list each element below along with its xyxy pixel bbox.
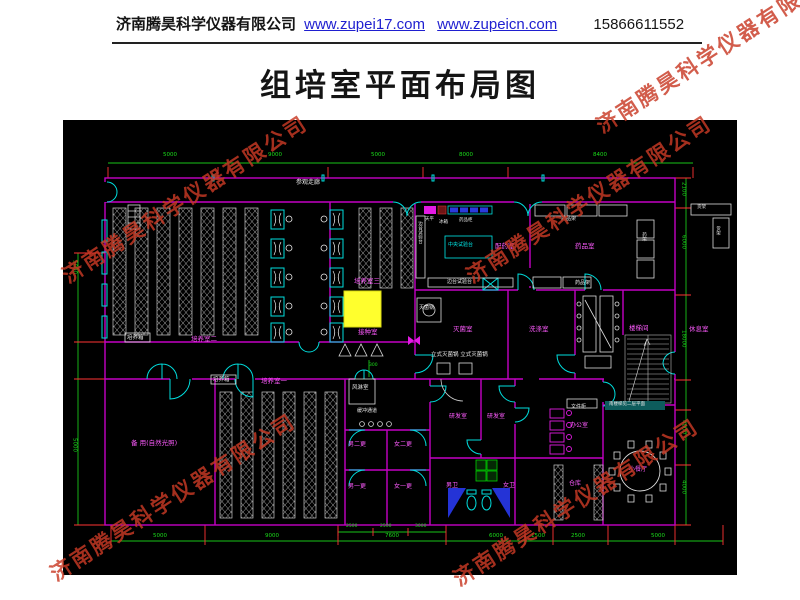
link-zupeicn[interactable]: www.zupeicn.com — [437, 16, 557, 33]
label-change-room: 男二更 — [348, 442, 366, 448]
label-culture-room-2: 培养室二 — [191, 336, 217, 343]
dim-bottom: 2500 — [571, 534, 585, 540]
dim-sub: 2500 — [346, 525, 357, 530]
label-change-room: 男一更 — [348, 484, 366, 490]
page-title: 组培室平面布局图 — [260, 60, 540, 105]
dim-left: 5000 — [71, 438, 77, 452]
dim-top: 8400 — [593, 153, 607, 159]
label-central-bench: 中央试验台 — [448, 243, 473, 248]
dim-right: 2100 — [680, 182, 686, 196]
label-file-cabinet: 文件柜 — [571, 405, 586, 410]
label-mens-toilet: 男卫 — [446, 483, 458, 489]
header-divider — [112, 42, 702, 44]
label-culture-room-1: 培养室一 — [261, 378, 287, 385]
label-medicine-cabinet: 药品柜 — [459, 219, 473, 224]
dim-top: 5000 — [371, 153, 385, 159]
label-fridge: 冰箱 — [439, 221, 448, 226]
label-buffer-corridor: 缓冲通道 — [357, 409, 377, 414]
floor-plan-canvas: 参观走廊培养箱培养室二培养室三接种室培养箱培养室一备 用(自然光照)风淋室缓冲通… — [63, 120, 737, 575]
dim-right: 6000 — [680, 235, 686, 249]
label-inoculation-room: 接种室 — [358, 329, 378, 336]
dim-bottom: 5000 — [651, 534, 665, 540]
label-sterilizer: 灭菌锅 — [419, 306, 434, 311]
label-office: 办公室 — [570, 423, 588, 429]
label-rd-room: 研发室 — [487, 414, 505, 420]
label-air-shower: 风淋室 — [352, 386, 369, 392]
label-vertical-sterilizers: 立式灭菌锅 立式灭菌锅 — [431, 353, 488, 359]
label-sterilization-room: 灭菌室 — [453, 326, 473, 333]
dim-right: 4000 — [680, 480, 686, 494]
label-shelf: 货架 — [715, 226, 720, 235]
label-visitor-corridor: 参观走廊 — [296, 180, 320, 186]
header-bar: 济南腾昊科学仪器有限公司 www.zupei17.com www.zupeicn… — [0, 13, 800, 34]
label-womens-toilet: 女卫 — [503, 483, 515, 489]
link-zupei17[interactable]: www.zupei17.com — [304, 16, 425, 33]
label-medicine-room: 药品室 — [575, 243, 595, 250]
label-change-room: 女二更 — [394, 442, 412, 448]
dim-left: 5000 — [71, 260, 77, 274]
plan-labels: 参观走廊培养箱培养室二培养室三接种室培养箱培养室一备 用(自然光照)风淋室缓冲通… — [63, 120, 737, 575]
label-incubator: 培养箱 — [127, 336, 144, 342]
dim-bottom: 1500 — [531, 534, 545, 540]
label-incubator: 培养箱 — [213, 378, 230, 384]
label-storage: 仓库 — [569, 481, 581, 487]
dim-bottom: 6000 — [489, 534, 503, 540]
phone-number: 15866611552 — [593, 16, 684, 33]
dim-bottom: 5000 — [153, 534, 167, 540]
label-balance: 天平 — [425, 218, 434, 223]
label-rack: 药架 — [641, 232, 646, 241]
dim-top: 8000 — [459, 153, 473, 159]
company-name: 济南腾昊科学仪器有限公司 — [116, 16, 296, 33]
label-culture-room-3: 培养室三 — [354, 278, 380, 285]
dim-right: 18000 — [680, 330, 686, 348]
label-rd-room: 研发室 — [449, 414, 467, 420]
dim-top: 5000 — [163, 153, 177, 159]
dim-right: 4000 — [680, 420, 686, 434]
label-washing-room: 洗涤室 — [529, 326, 549, 333]
label-stair-note: 南楼梯见二层平面 — [609, 403, 645, 408]
dim-bottom: 9000 — [265, 534, 279, 540]
label-rest-room: 休息室 — [689, 326, 709, 333]
label-dining-room: 小餐厅 — [629, 467, 647, 473]
label-medicine-rack: 药品架 — [561, 217, 576, 222]
dim-sub: 3000 — [415, 525, 426, 530]
label-medicine-rack: 药品架 — [575, 281, 590, 286]
dim-bottom: 7600 — [385, 534, 399, 540]
dim-sub: 2500 — [380, 525, 391, 530]
label-stairwell: 楼梯间 — [629, 325, 649, 332]
label-spare-room: 备 用(自然光照) — [131, 440, 177, 447]
dim-sub: 300 — [369, 364, 378, 369]
label-medicine-prep-room: 配药室 — [495, 243, 515, 250]
dim-top: 9000 — [268, 153, 282, 159]
label-side-bench: 边台试验台 — [447, 280, 472, 285]
label-side-bench: 边台试验台 — [417, 221, 422, 244]
label-change-room: 女一更 — [394, 484, 412, 490]
page: 济南腾昊科学仪器有限公司 www.zupei17.com www.zupeicn… — [0, 0, 800, 600]
label-shelf: 货架 — [697, 206, 706, 211]
